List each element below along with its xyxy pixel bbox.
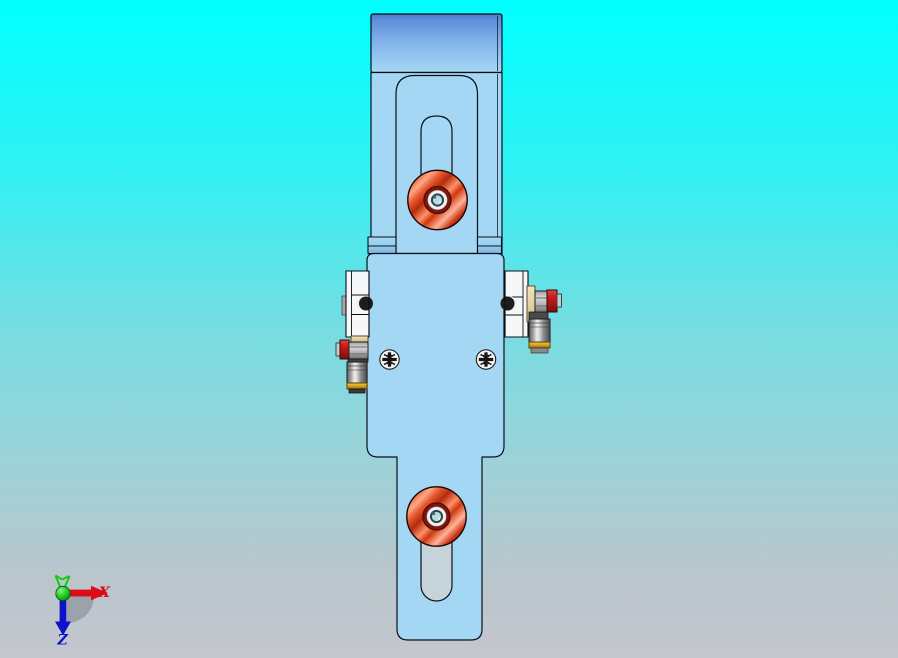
upper-roller-hub	[424, 186, 451, 213]
fitting-right-red-ring	[547, 290, 557, 312]
fitting-left-body	[351, 336, 368, 342]
top-cap[interactable]	[371, 14, 502, 73]
phillips-screw-left[interactable]	[380, 350, 399, 369]
upper-roller[interactable]	[408, 170, 467, 229]
sensor-rail-right[interactable]	[501, 271, 529, 337]
z-axis-label: Z	[57, 633, 69, 649]
fitting-right-tip	[531, 348, 548, 353]
lower-roller[interactable]	[407, 487, 466, 546]
cad-viewport[interactable]: X Z	[0, 0, 898, 658]
sensor-window-right	[501, 297, 515, 311]
fitting-right-collar	[529, 312, 548, 319]
sensor-rail-left[interactable]	[342, 271, 373, 337]
fitting-left-hex-nut	[349, 342, 368, 359]
fitting-left-tip	[349, 389, 365, 393]
plate-foot-right	[478, 237, 502, 254]
fitting-left-gold-band	[347, 383, 367, 389]
fitting-left-red-ring	[340, 340, 349, 359]
phillips-screw-right[interactable]	[476, 350, 495, 369]
fitting-left-barrel	[347, 362, 367, 383]
lower-roller-hub	[423, 503, 450, 530]
fitting-right-nipple	[557, 294, 562, 307]
fitting-right-gold-band	[529, 342, 550, 348]
x-axis-label: X	[98, 585, 111, 601]
fitting-right-barrel	[529, 319, 550, 342]
sensor-window-left	[359, 297, 373, 311]
fitting-right-hex-nut	[535, 291, 547, 313]
viewport-canvas[interactable]: X Z	[0, 0, 898, 658]
origin-sphere[interactable]	[56, 586, 70, 600]
plate-foot-left	[368, 237, 396, 254]
